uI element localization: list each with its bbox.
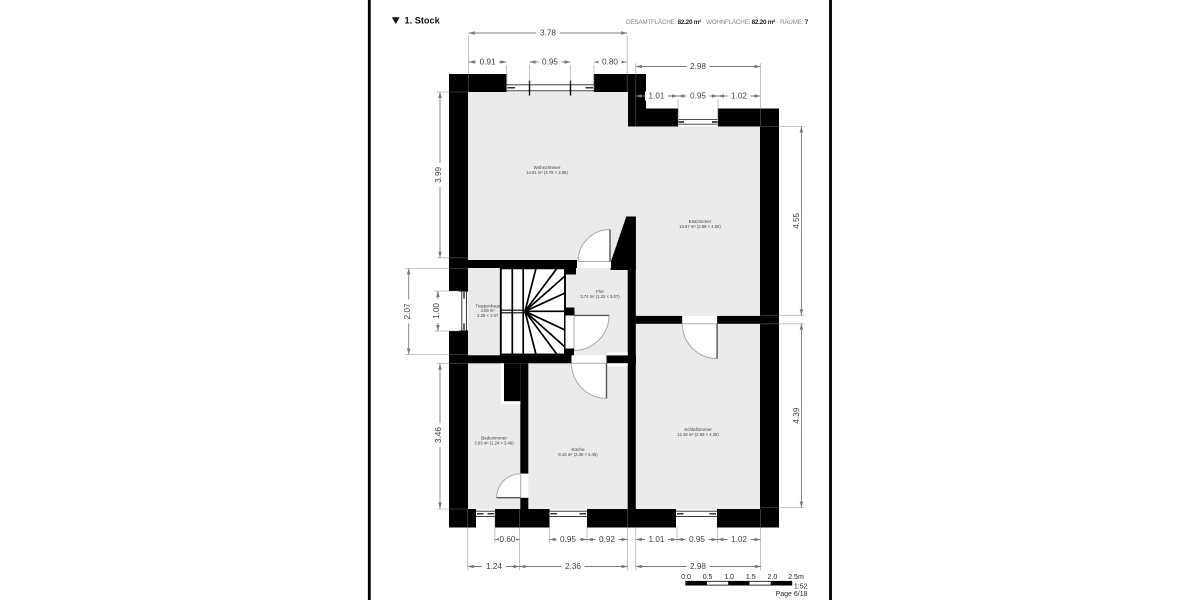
svg-text:1.02: 1.02 bbox=[731, 535, 747, 544]
svg-text:2.5m: 2.5m bbox=[788, 574, 804, 581]
svg-text:2.0: 2.0 bbox=[768, 574, 778, 581]
svg-text:Page 6/18: Page 6/18 bbox=[776, 591, 808, 598]
svg-text:0.95: 0.95 bbox=[542, 58, 558, 67]
svg-text:1.01: 1.01 bbox=[649, 535, 665, 544]
svg-text:1.0: 1.0 bbox=[724, 574, 734, 581]
svg-text:1.24: 1.24 bbox=[486, 562, 502, 571]
svg-text:1.02: 1.02 bbox=[731, 92, 747, 101]
svg-text:14.91 m² (3.78 × 3.99): 14.91 m² (3.78 × 3.99) bbox=[526, 170, 568, 175]
svg-text:2.98: 2.98 bbox=[690, 562, 706, 571]
svg-text:1.5: 1.5 bbox=[746, 574, 756, 581]
svg-text:4.55: 4.55 bbox=[792, 212, 801, 228]
svg-text:0.5: 0.5 bbox=[703, 574, 713, 581]
svg-text:0.0: 0.0 bbox=[681, 574, 691, 581]
svg-text:2.36: 2.36 bbox=[565, 562, 581, 571]
svg-text:3.74 m² (1.32 × 3.07): 3.74 m² (1.32 × 3.07) bbox=[580, 294, 620, 299]
svg-text:2.07: 2.07 bbox=[403, 303, 412, 319]
svg-text:4.39: 4.39 bbox=[792, 407, 801, 423]
svg-text:3.99: 3.99 bbox=[434, 166, 443, 182]
svg-text:13.57 m² (2.98 × 4.55): 13.57 m² (2.98 × 4.55) bbox=[679, 224, 721, 229]
svg-text:0.95: 0.95 bbox=[560, 535, 576, 544]
svg-text:0.92: 0.92 bbox=[599, 535, 615, 544]
svg-text:1:52: 1:52 bbox=[794, 584, 808, 591]
svg-text:0.80: 0.80 bbox=[602, 58, 618, 67]
svg-text:2.26 × 2.07: 2.26 × 2.07 bbox=[477, 313, 499, 318]
svg-text:0.95: 0.95 bbox=[690, 92, 706, 101]
svg-text:12.46 m² (2.98 × 4.39): 12.46 m² (2.98 × 4.39) bbox=[677, 432, 719, 437]
svg-text:3.46: 3.46 bbox=[434, 427, 443, 443]
svg-text:0.60: 0.60 bbox=[500, 535, 516, 544]
svg-text:1.01: 1.01 bbox=[649, 92, 665, 101]
svg-text:GESAMTFLÄCHE: 82.20 m² · WOHNF: GESAMTFLÄCHE: 82.20 m² · WOHNFLÄCHE: 82.… bbox=[626, 18, 809, 26]
svg-text:2.98: 2.98 bbox=[690, 62, 706, 71]
svg-text:8.16 m² (2.36 × 3.46): 8.16 m² (2.36 × 3.46) bbox=[558, 452, 598, 457]
svg-text:1. Stock: 1. Stock bbox=[405, 16, 441, 26]
svg-text:0.91: 0.91 bbox=[480, 58, 496, 67]
svg-text:3.93 m² (1.24 × 3.46): 3.93 m² (1.24 × 3.46) bbox=[474, 441, 514, 446]
svg-text:1.00: 1.00 bbox=[432, 303, 441, 319]
svg-text:0.95: 0.95 bbox=[689, 535, 705, 544]
svg-text:3.78: 3.78 bbox=[540, 29, 556, 38]
